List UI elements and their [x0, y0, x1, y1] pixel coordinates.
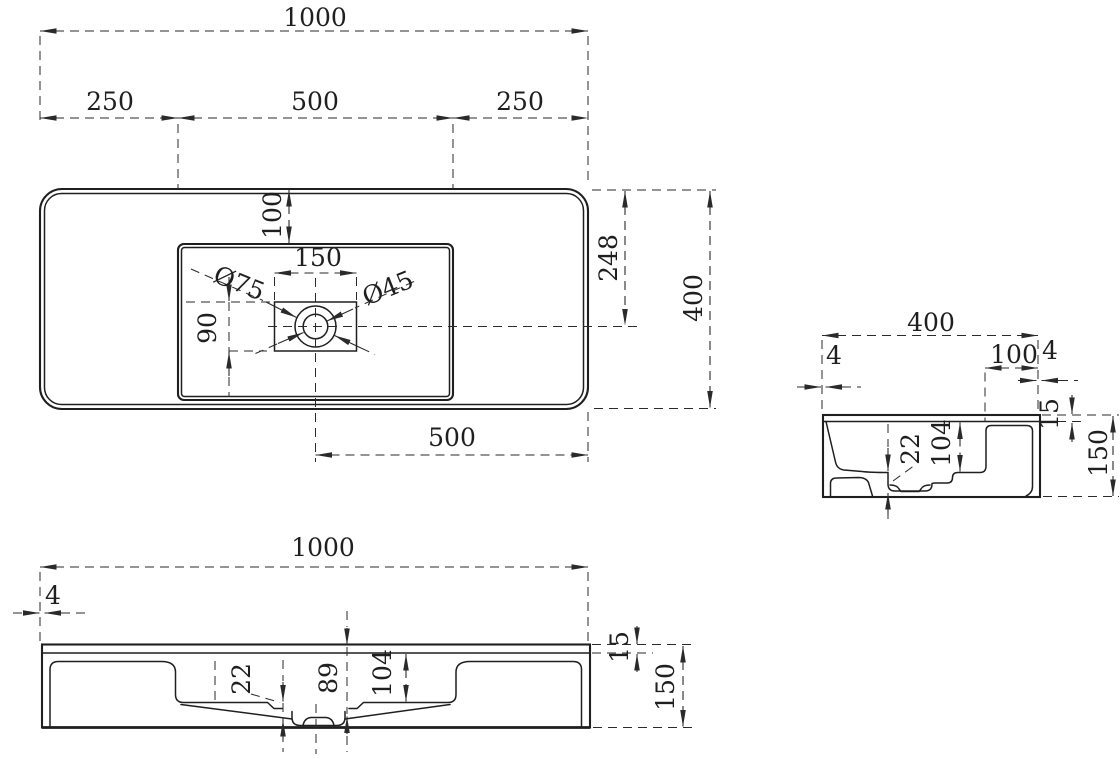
dim-side-back-shelf: 100 [990, 340, 1038, 369]
plan-view: 1000 250 500 250 100 150 Ø75 Ø45 90 248 … [40, 3, 716, 462]
dim-side-basin-depth: 104 [927, 419, 956, 467]
dim-front-recess-depth: 22 [227, 663, 256, 695]
plan-dimensions: 1000 250 500 250 100 150 Ø75 Ø45 90 248 … [40, 3, 716, 462]
front-drain-funnel-inner [303, 718, 334, 726]
dim-plan-drain-box-depth: 90 [193, 312, 222, 344]
dim-front-side-lip: 4 [45, 581, 61, 610]
leader-faucet-dia-tail2 [361, 348, 375, 355]
dim-front-width: 1000 [291, 533, 355, 562]
dim-plan-overall-depth: 400 [679, 274, 708, 322]
leader-faucet-dia-arrow1 [266, 302, 297, 318]
dim-side-back-lip: 4 [1042, 336, 1058, 365]
dim-plan-right-margin: 250 [496, 87, 544, 116]
dim-plan-drain-box-width: 150 [294, 243, 342, 272]
dim-side-depth: 400 [907, 308, 955, 337]
dim-front-rim-thickness: 15 [605, 631, 634, 663]
side-foot-recess [831, 478, 873, 497]
dim-side-height: 150 [1084, 429, 1113, 477]
dim-side-rim-thickness: 15 [1035, 398, 1064, 430]
side-section-view: 400 4 100 4 15 150 104 22 [797, 308, 1119, 519]
dim-front-drain-depth: 89 [314, 662, 343, 694]
leader-drain-dia-arrow1 [327, 309, 353, 321]
leader-drain-dia-arrow2 [278, 333, 304, 344]
dim-plan-left-margin: 250 [86, 87, 134, 116]
dim-plan-top-inset: 100 [258, 191, 287, 239]
dim-plan-overall-width: 1000 [283, 3, 347, 32]
dim-plan-drain-to-right: 500 [428, 423, 476, 452]
dim-plan-center-from-back: 248 [594, 234, 623, 282]
drawing-canvas: 1000 250 500 250 100 150 Ø75 Ø45 90 248 … [0, 0, 1120, 759]
dim-plan-basin-width: 500 [291, 87, 339, 116]
side-dimensions: 400 4 100 4 15 150 104 22 [797, 308, 1119, 519]
dim-plan-faucet-dia: Ø75 [210, 260, 269, 306]
dim-front-height: 150 [651, 663, 680, 711]
dim-side-recess-depth: 22 [896, 433, 925, 465]
basin-outer-rim-line [45, 194, 584, 405]
front-floor-slope-right [345, 705, 450, 720]
front-section-view: 1000 4 15 150 104 89 22 [13, 533, 696, 754]
basin-outer-edge [40, 189, 588, 409]
dim-side-front-lip: 4 [826, 341, 842, 370]
technical-drawing: 1000 250 500 250 100 150 Ø75 Ø45 90 248 … [0, 0, 1120, 759]
front-drain-funnel-outer [292, 712, 345, 726]
plan-outline [40, 189, 588, 409]
dim-front-basin-depth: 104 [368, 649, 397, 697]
dim-plan-drain-dia: Ø45 [358, 265, 417, 311]
leader-side-recess [893, 465, 915, 481]
front-floor-slope-left [181, 705, 292, 720]
